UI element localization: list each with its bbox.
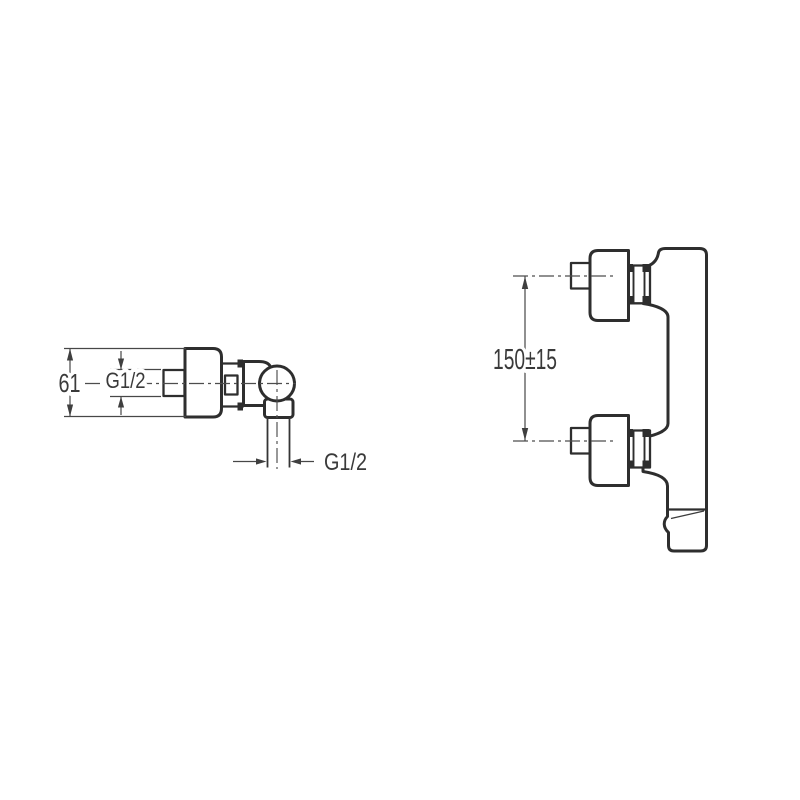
dimension-spacing-arrow-up <box>522 277 528 290</box>
front-bottom-neck <box>628 429 650 469</box>
dimension-spacing-arrow-down <box>522 428 528 441</box>
front-top-neck-tick <box>643 296 650 304</box>
front-top-neck-tick <box>643 264 650 272</box>
dimension-outlet-thread: G1/2 <box>233 449 367 476</box>
dimension-inlet-thread: G1/2 <box>106 351 162 415</box>
front-top-escutcheon <box>590 251 629 321</box>
dimension-61-arrow-down <box>67 405 73 417</box>
front-body <box>643 249 707 552</box>
side-outlet-edges <box>268 418 290 468</box>
dimension-outlet-thread-label: G1/2 <box>324 449 367 476</box>
front-bottom-neck-tick <box>643 461 650 469</box>
front-top-neck <box>628 264 650 304</box>
technical-drawing-canvas: 61 G1/2 G1/2 <box>0 0 800 800</box>
dimension-inlet-arrow-up <box>118 397 124 408</box>
drawing-page: 61 G1/2 G1/2 <box>0 0 800 800</box>
dimension-port-spacing: 150±15 <box>493 277 557 441</box>
dimension-outlet-arrow-right <box>256 458 267 464</box>
dimension-61-arrow-up <box>67 349 73 361</box>
dimension-port-spacing-label: 150±15 <box>493 344 557 376</box>
side-union-nut <box>225 376 238 395</box>
side-view: 61 G1/2 G1/2 <box>59 349 368 477</box>
dimension-inlet-thread-label: G1/2 <box>106 368 146 393</box>
front-view: 150±15 <box>493 249 707 552</box>
dimension-outlet-arrow-left <box>291 458 302 464</box>
side-escutcheon <box>185 349 222 418</box>
front-bottom-neck-tick <box>643 429 650 437</box>
front-bottom-escutcheon <box>590 416 629 486</box>
dimension-61-label: 61 <box>59 368 81 398</box>
